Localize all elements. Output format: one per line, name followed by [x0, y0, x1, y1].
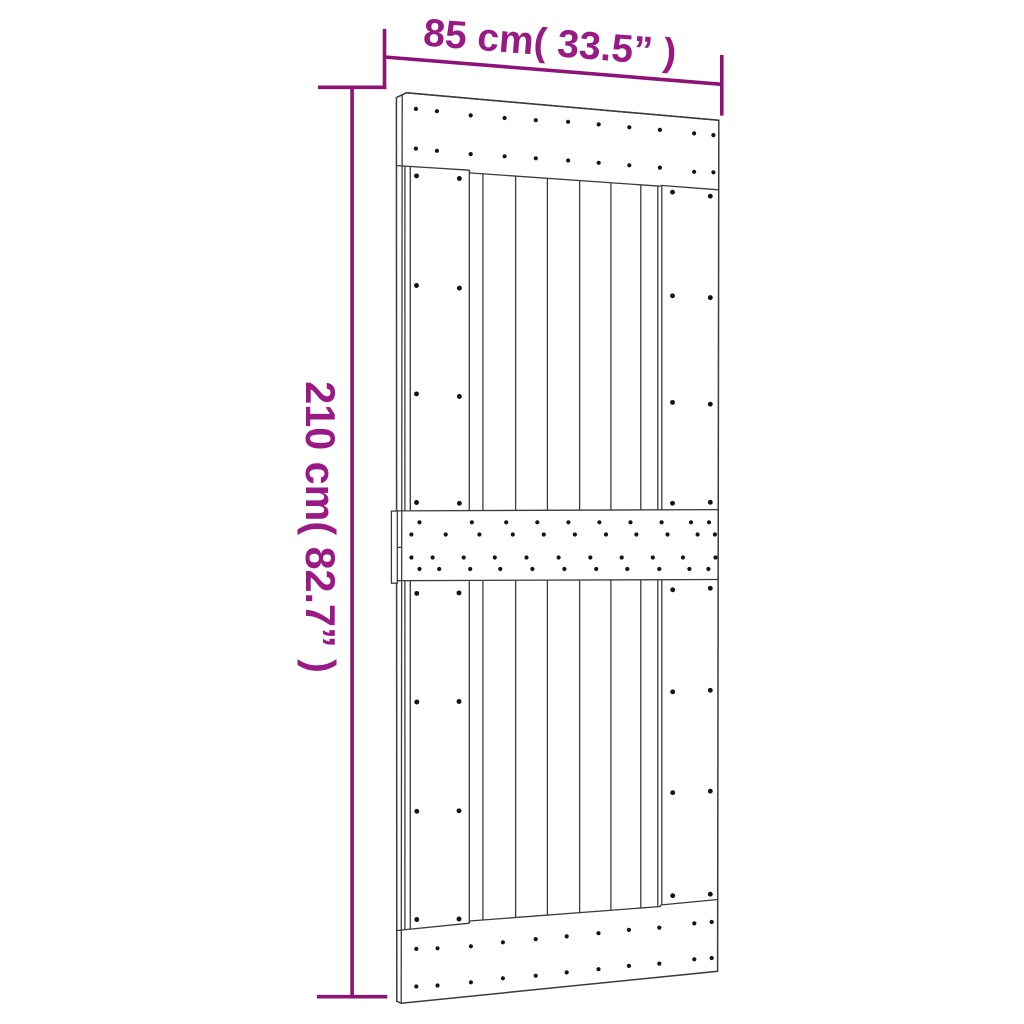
svg-text:85 cm( 33.5” ): 85 cm( 33.5” ) — [422, 12, 678, 75]
svg-text:210 cm( 82.7” ): 210 cm( 82.7” ) — [297, 381, 343, 673]
